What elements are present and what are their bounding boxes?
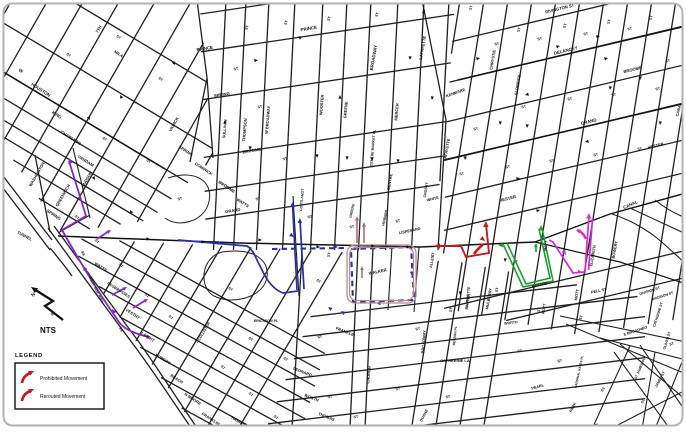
svg-text:Rerouted Movement: Rerouted Movement <box>40 394 86 400</box>
svg-text:ERICSSON PL: ERICSSON PL <box>254 319 279 323</box>
svg-text:Prohibited Movement: Prohibited Movement <box>40 376 88 382</box>
svg-text:LEGEND: LEGEND <box>15 353 43 359</box>
svg-text:CATHERINE LA: CATHERINE LA <box>440 358 470 363</box>
svg-text:NTS: NTS <box>40 326 57 335</box>
